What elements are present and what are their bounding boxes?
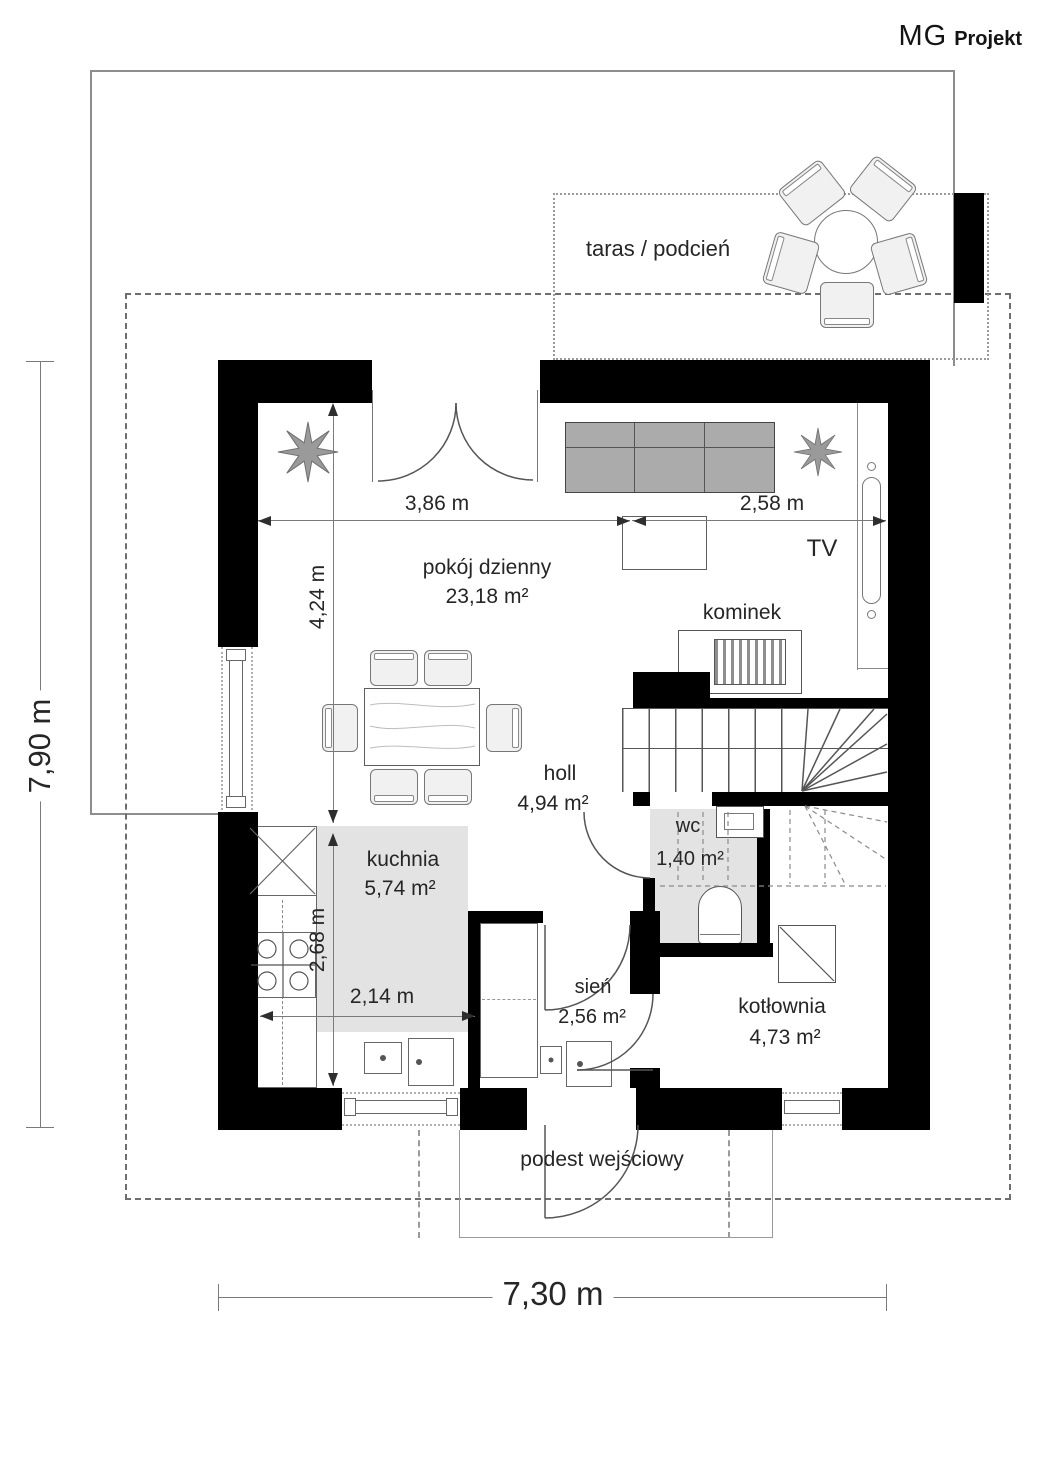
window-reveal <box>221 647 223 810</box>
entry-platform <box>459 1126 773 1238</box>
kitchen-sink-unit <box>364 1042 402 1074</box>
dim-label-kitchen-depth: 2,68 m <box>306 908 330 972</box>
terrace-chair <box>820 282 874 328</box>
wall <box>218 1088 342 1130</box>
dim-arrow <box>328 403 338 416</box>
niche-line-h <box>857 668 888 669</box>
dim-arrow <box>328 833 338 846</box>
dim-tick <box>26 1127 54 1128</box>
wall <box>712 792 888 806</box>
room-area-pokoj: 23,18 m² <box>446 585 529 609</box>
wall <box>636 1088 782 1130</box>
dim-tick <box>26 361 54 362</box>
dishwasher <box>408 1038 454 1086</box>
dim-label-living-width-right: 2,58 m <box>740 492 804 516</box>
window-cap <box>446 1098 458 1116</box>
brand-logo: MGProjekt <box>898 20 1022 53</box>
platform-dash <box>728 1130 730 1238</box>
window-cap <box>344 1098 356 1116</box>
brand-secondary: Projekt <box>954 28 1022 50</box>
room-label-kotlownia: kotłownia <box>738 995 826 1019</box>
dim-arrow <box>328 1073 338 1086</box>
toilet-base-line <box>700 934 740 935</box>
fridge-unit <box>248 826 317 896</box>
wall <box>710 698 888 708</box>
wall <box>630 911 660 994</box>
terrace-pillar <box>954 193 984 303</box>
toilet <box>698 886 742 944</box>
tv-unit-cap <box>867 462 876 471</box>
wall <box>630 1068 660 1088</box>
dim-arrow <box>633 516 646 526</box>
dim-line <box>333 835 334 1086</box>
dim-arrow <box>258 516 271 526</box>
feature-label-kominek: kominek <box>703 601 781 625</box>
tv-unit-cap <box>867 610 876 619</box>
room-area-kotlownia: 4,73 m² <box>749 1026 820 1050</box>
window-reveal <box>342 1124 460 1126</box>
wc-sink-basin <box>724 813 754 830</box>
niche-line-v <box>857 403 858 670</box>
window <box>784 1100 840 1114</box>
room-label-kuchnia: kuchnia <box>367 848 439 872</box>
wall <box>540 360 930 403</box>
hall-wardrobe-midline <box>482 999 536 1000</box>
room-area-wc: 1,40 m² <box>656 848 724 871</box>
dim-label-living-depth: 4,24 m <box>306 565 330 629</box>
fireplace-hatch <box>714 639 786 685</box>
room-label-pokoj: pokój dzienny <box>423 556 551 580</box>
room-label-holl: holl <box>544 762 577 786</box>
window <box>346 1100 456 1114</box>
window-reveal <box>782 1124 842 1126</box>
dining-chair <box>424 769 472 805</box>
window-reveal <box>782 1092 842 1094</box>
room-label-taras: taras / podcień <box>586 236 730 262</box>
room-area-holl: 4,94 m² <box>517 792 588 816</box>
dim-arrow <box>462 1011 475 1021</box>
dim-arrow <box>260 1011 273 1021</box>
platform-dash <box>418 1130 420 1238</box>
hall-cabinet-small <box>540 1046 562 1074</box>
feature-label-tv: TV <box>807 535 838 563</box>
window-reveal <box>251 647 253 810</box>
dining-chair <box>424 650 472 686</box>
upper-floor-outline-top <box>90 70 955 72</box>
wall <box>842 1088 888 1130</box>
dim-line <box>632 520 886 521</box>
dining-chair <box>486 704 522 752</box>
dim-label-kitchen-width: 2,14 m <box>350 985 414 1009</box>
dining-chair <box>370 650 418 686</box>
stairs-treads <box>622 709 802 792</box>
dim-arrow <box>873 516 886 526</box>
room-label-wc: wc <box>676 815 700 838</box>
terrace-table <box>814 210 878 274</box>
stairs-mid-line <box>622 748 888 749</box>
wall <box>218 360 258 647</box>
wall <box>888 360 930 1130</box>
floor-plan: MGProjekt taras / podcień <box>0 0 1050 1464</box>
dim-label-overall-depth: 7,90 m <box>22 691 58 802</box>
hall-wardrobe <box>480 923 538 1078</box>
sofa <box>565 422 775 493</box>
room-label-sien: sień <box>575 976 612 999</box>
window-cap <box>226 649 246 661</box>
dining-chair <box>370 769 418 805</box>
hall-cabinet <box>566 1041 612 1087</box>
dim-tick <box>218 1284 219 1311</box>
dim-label-overall-width: 7,30 m <box>493 1275 614 1313</box>
wall <box>460 1088 527 1130</box>
door-jamb <box>372 390 373 482</box>
dining-table <box>364 688 480 766</box>
dim-label-living-width-left: 3,86 m <box>405 492 469 516</box>
dim-line <box>258 520 630 521</box>
wall <box>633 672 710 708</box>
dim-line <box>260 1016 475 1017</box>
brand-primary: MG <box>898 20 947 52</box>
room-area-kuchnia: 5,74 m² <box>364 877 435 901</box>
wall <box>218 812 258 1130</box>
window-cap <box>226 796 246 808</box>
upper-floor-outline-left <box>90 70 92 815</box>
dining-chair <box>322 704 358 752</box>
door-jamb <box>537 390 538 482</box>
tv-unit <box>862 477 881 604</box>
dim-arrow <box>617 516 630 526</box>
room-label-podest: podest wejściowy <box>520 1148 683 1172</box>
dim-arrow <box>328 810 338 823</box>
wall <box>633 792 650 806</box>
window <box>229 651 243 806</box>
dim-line <box>333 405 334 823</box>
stairs-top-edge <box>622 708 888 709</box>
wall <box>468 911 480 1088</box>
boiler <box>778 925 836 983</box>
dim-tick <box>886 1284 887 1311</box>
room-area-sien: 2,56 m² <box>558 1006 626 1029</box>
window-reveal <box>342 1092 460 1094</box>
